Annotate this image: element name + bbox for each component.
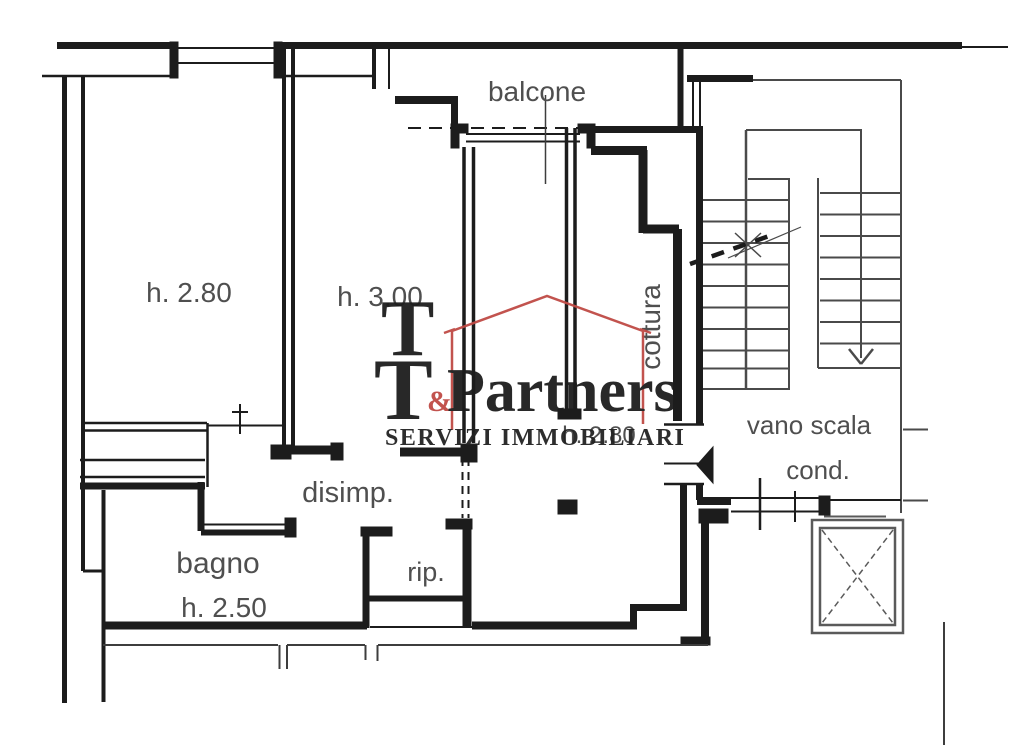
door-jamb [285,518,296,537]
label-disimp: disimp. [302,477,394,509]
floor-plan-drawing: balcone h. 2.80 h. 3.00 cottura disimp. … [0,0,1024,745]
watermark-subtitle: SERVIZI IMMOBILIARI [385,425,685,451]
rip-right-cap [446,519,472,529]
door-swing-triangle [697,447,713,483]
elevator-x-diagonal [822,530,893,623]
staircase [690,80,928,513]
label-cond: cond. [786,455,850,485]
label-vano-scala: vano scala [747,410,872,440]
elevator [812,517,903,634]
lower-boundary-lines [103,622,944,745]
stair-direction-arrowhead [861,349,873,364]
floor-plan-page: balcone h. 2.80 h. 3.00 cottura disimp. … [0,0,1024,745]
bagno-rip-walls [80,460,472,628]
label-room-left-height: h. 2.80 [146,277,232,308]
elevator-shaft-outer [812,520,903,633]
vano-scala-walls [681,478,901,645]
label-bagno: bagno [176,547,259,580]
interior-walls [271,49,684,629]
label-bagno-height: h. 2.50 [181,592,267,623]
label-rip: rip. [407,557,445,587]
door-jamb [558,500,577,514]
door-jamb [331,443,343,460]
elevator-x-diagonal [822,530,893,623]
elevator-jamb [819,496,830,515]
watermark-name: Partners [447,357,678,425]
wall-below-foot [681,637,710,645]
label-balcone: balcone [488,76,586,107]
wall-step-below [699,509,728,523]
stair-direction-arrowhead [849,349,861,364]
